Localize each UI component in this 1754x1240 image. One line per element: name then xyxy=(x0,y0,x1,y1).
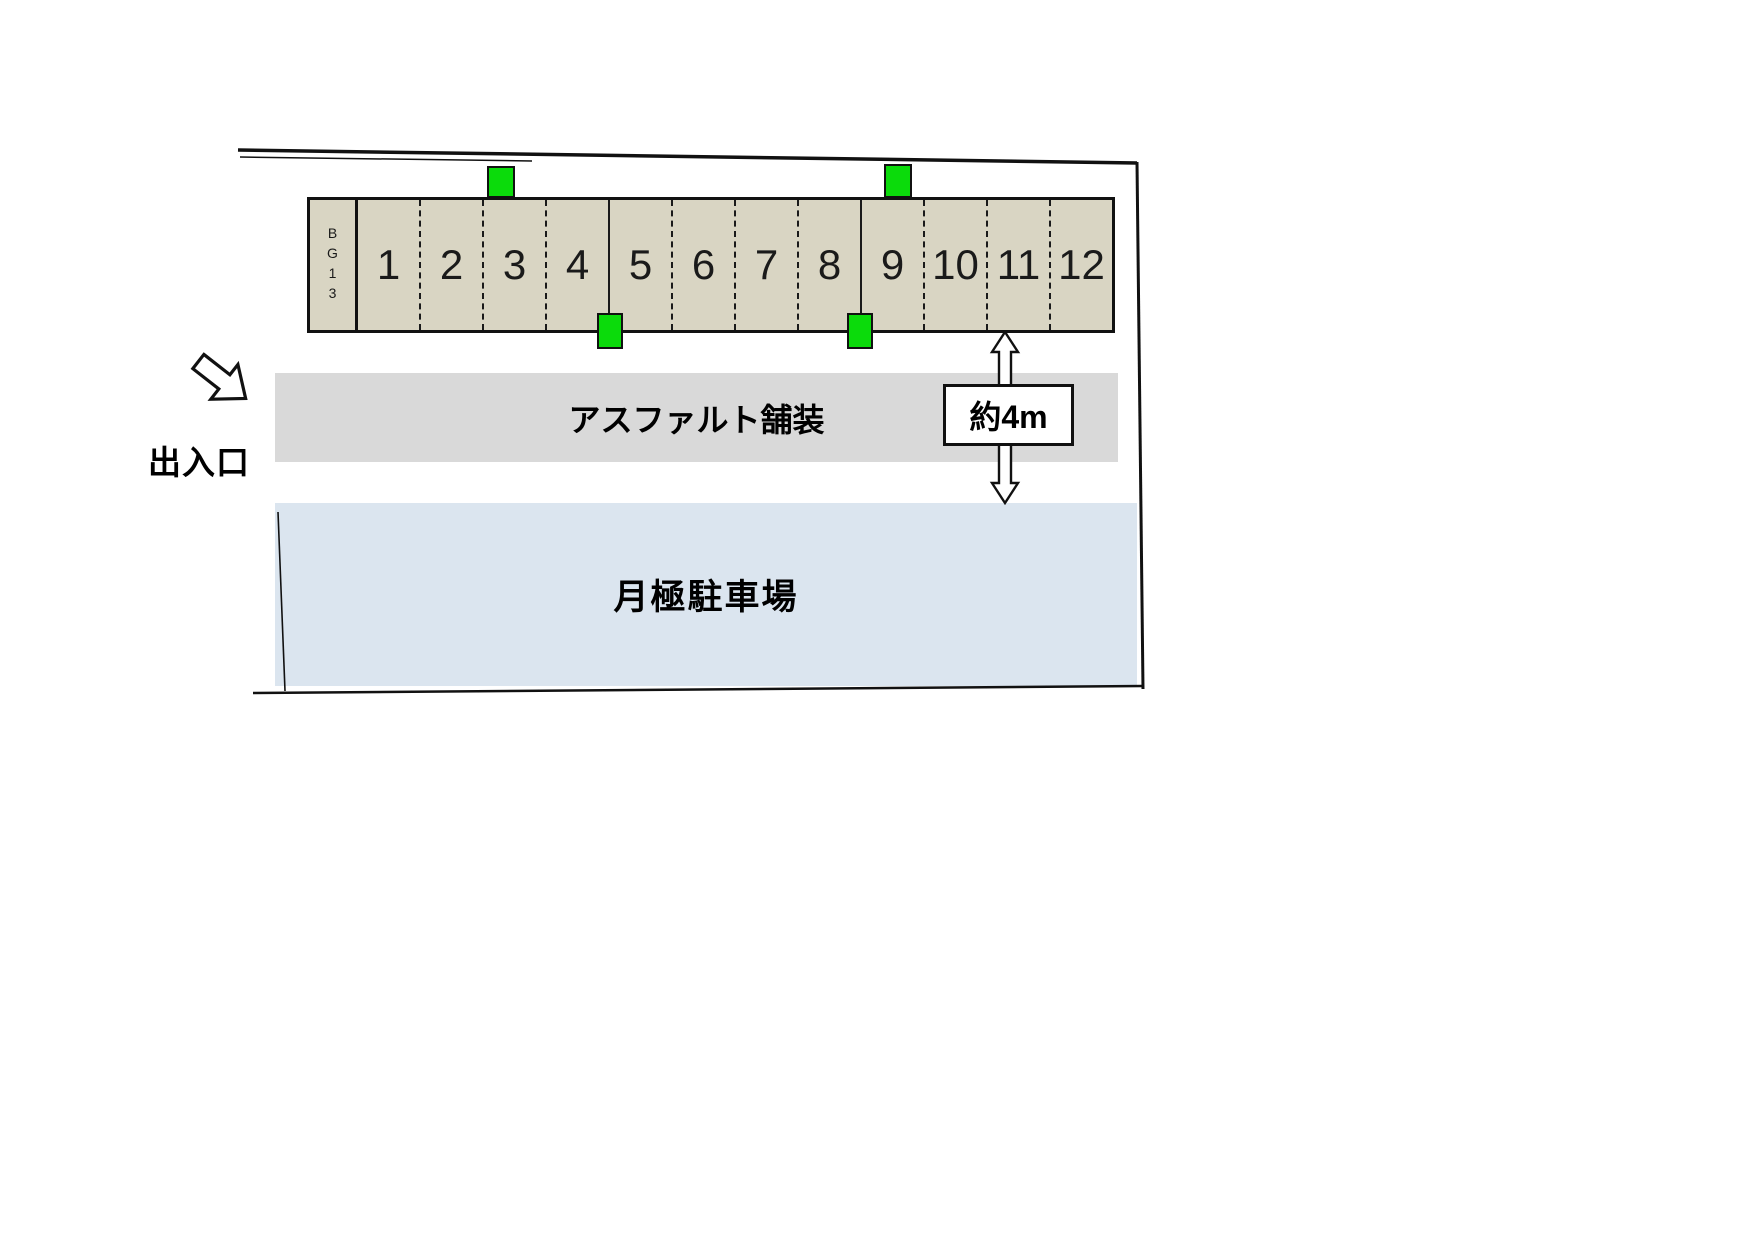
space-number: 7 xyxy=(755,241,778,289)
parking-space: 12 xyxy=(1049,200,1112,330)
row-label-box: BG13 xyxy=(310,200,358,330)
monthly-parking-area: 月極駐車場 xyxy=(275,503,1137,686)
boundary-bottom-line xyxy=(253,686,1143,693)
space-number: 8 xyxy=(818,241,841,289)
parking-space: 5 xyxy=(608,200,671,330)
entrance-arrow-icon xyxy=(178,350,278,442)
parking-space: 2 xyxy=(419,200,482,330)
space-number: 10 xyxy=(932,241,979,289)
parking-space: 8 xyxy=(797,200,860,330)
parking-space: 3 xyxy=(482,200,545,330)
parking-space: 6 xyxy=(671,200,734,330)
space-number: 4 xyxy=(566,241,589,289)
space-number: 11 xyxy=(997,241,1041,289)
parking-space: 7 xyxy=(734,200,797,330)
entrance-label: 出入口 xyxy=(148,436,250,484)
asphalt-strip-label: アスファルト舗装 xyxy=(568,395,824,441)
green-marker-bottom-left xyxy=(597,313,623,349)
parking-spaces: 1 2 3 4 5 6 7 8 9 10 xyxy=(358,200,1112,330)
parking-space: 10 xyxy=(923,200,986,330)
space-number: 6 xyxy=(692,241,715,289)
parking-space: 4 xyxy=(545,200,608,330)
row-label: BG13 xyxy=(325,225,341,305)
parking-space: 11 xyxy=(986,200,1049,330)
boundary-right-line xyxy=(1137,162,1143,689)
space-number: 9 xyxy=(881,241,904,289)
green-marker-top-left xyxy=(487,166,515,198)
green-marker-top-right xyxy=(884,164,912,198)
space-number: 1 xyxy=(377,241,400,289)
dimension-label: 約4m xyxy=(969,392,1047,438)
parking-space: 1 xyxy=(358,200,419,330)
space-number: 12 xyxy=(1058,241,1105,289)
monthly-parking-label: 月極駐車場 xyxy=(613,569,798,620)
space-number: 2 xyxy=(440,241,463,289)
space-number: 3 xyxy=(503,241,526,289)
space-number: 5 xyxy=(629,241,652,289)
parking-row: BG13 1 2 3 4 5 6 7 8 xyxy=(307,197,1115,333)
parking-site-plan: BG13 1 2 3 4 5 6 7 8 xyxy=(0,0,1754,1240)
dimension-box: 約4m xyxy=(943,384,1074,446)
parking-space: 9 xyxy=(860,200,923,330)
green-marker-bottom-right xyxy=(847,313,873,349)
boundary-top-line xyxy=(238,150,1137,163)
boundary-top-thin-line xyxy=(240,157,532,161)
